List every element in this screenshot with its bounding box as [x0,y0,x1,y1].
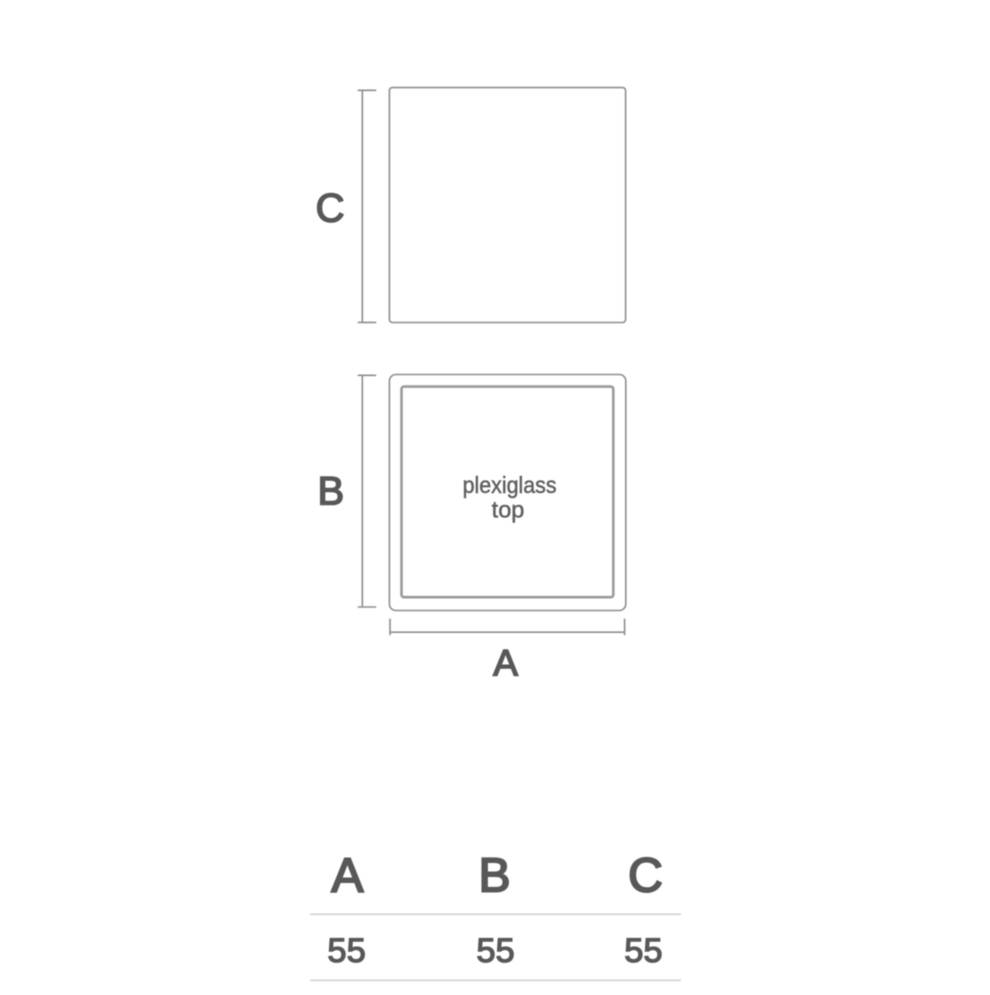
svg-text:B: B [478,850,510,903]
svg-text:A: A [331,850,363,903]
svg-text:plexiglass: plexiglass [463,472,557,498]
svg-text:55: 55 [624,932,662,970]
svg-text:top: top [492,496,525,522]
svg-text:55: 55 [327,932,365,970]
svg-text:C: C [316,187,345,231]
svg-text:55: 55 [476,932,514,970]
svg-text:C: C [628,850,663,903]
svg-text:A: A [493,642,518,683]
svg-text:B: B [318,470,345,514]
